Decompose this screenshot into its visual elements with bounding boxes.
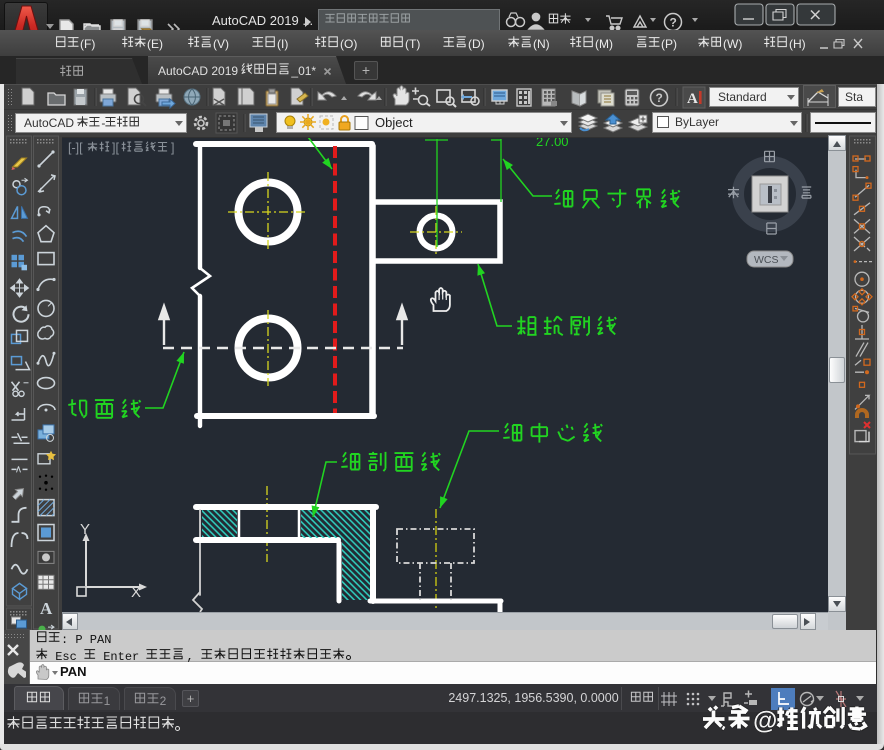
svg-text:?: ? [670, 16, 677, 30]
svg-text:A: A [687, 91, 698, 107]
svg-text:WCS: WCS [754, 254, 779, 266]
svg-text:A: A [40, 599, 53, 618]
svg-text:]: ] [171, 141, 174, 155]
svg-text:Y: Y [80, 521, 90, 538]
svg-text:@: @ [753, 707, 777, 735]
svg-text:X: X [131, 584, 141, 601]
svg-text:Object: Object [375, 115, 413, 130]
svg-text:?: ? [656, 91, 663, 105]
svg-text:][: ][ [112, 141, 119, 155]
svg-text:27.00: 27.00 [536, 138, 569, 149]
svg-text:[-][: [-][ [68, 141, 83, 155]
